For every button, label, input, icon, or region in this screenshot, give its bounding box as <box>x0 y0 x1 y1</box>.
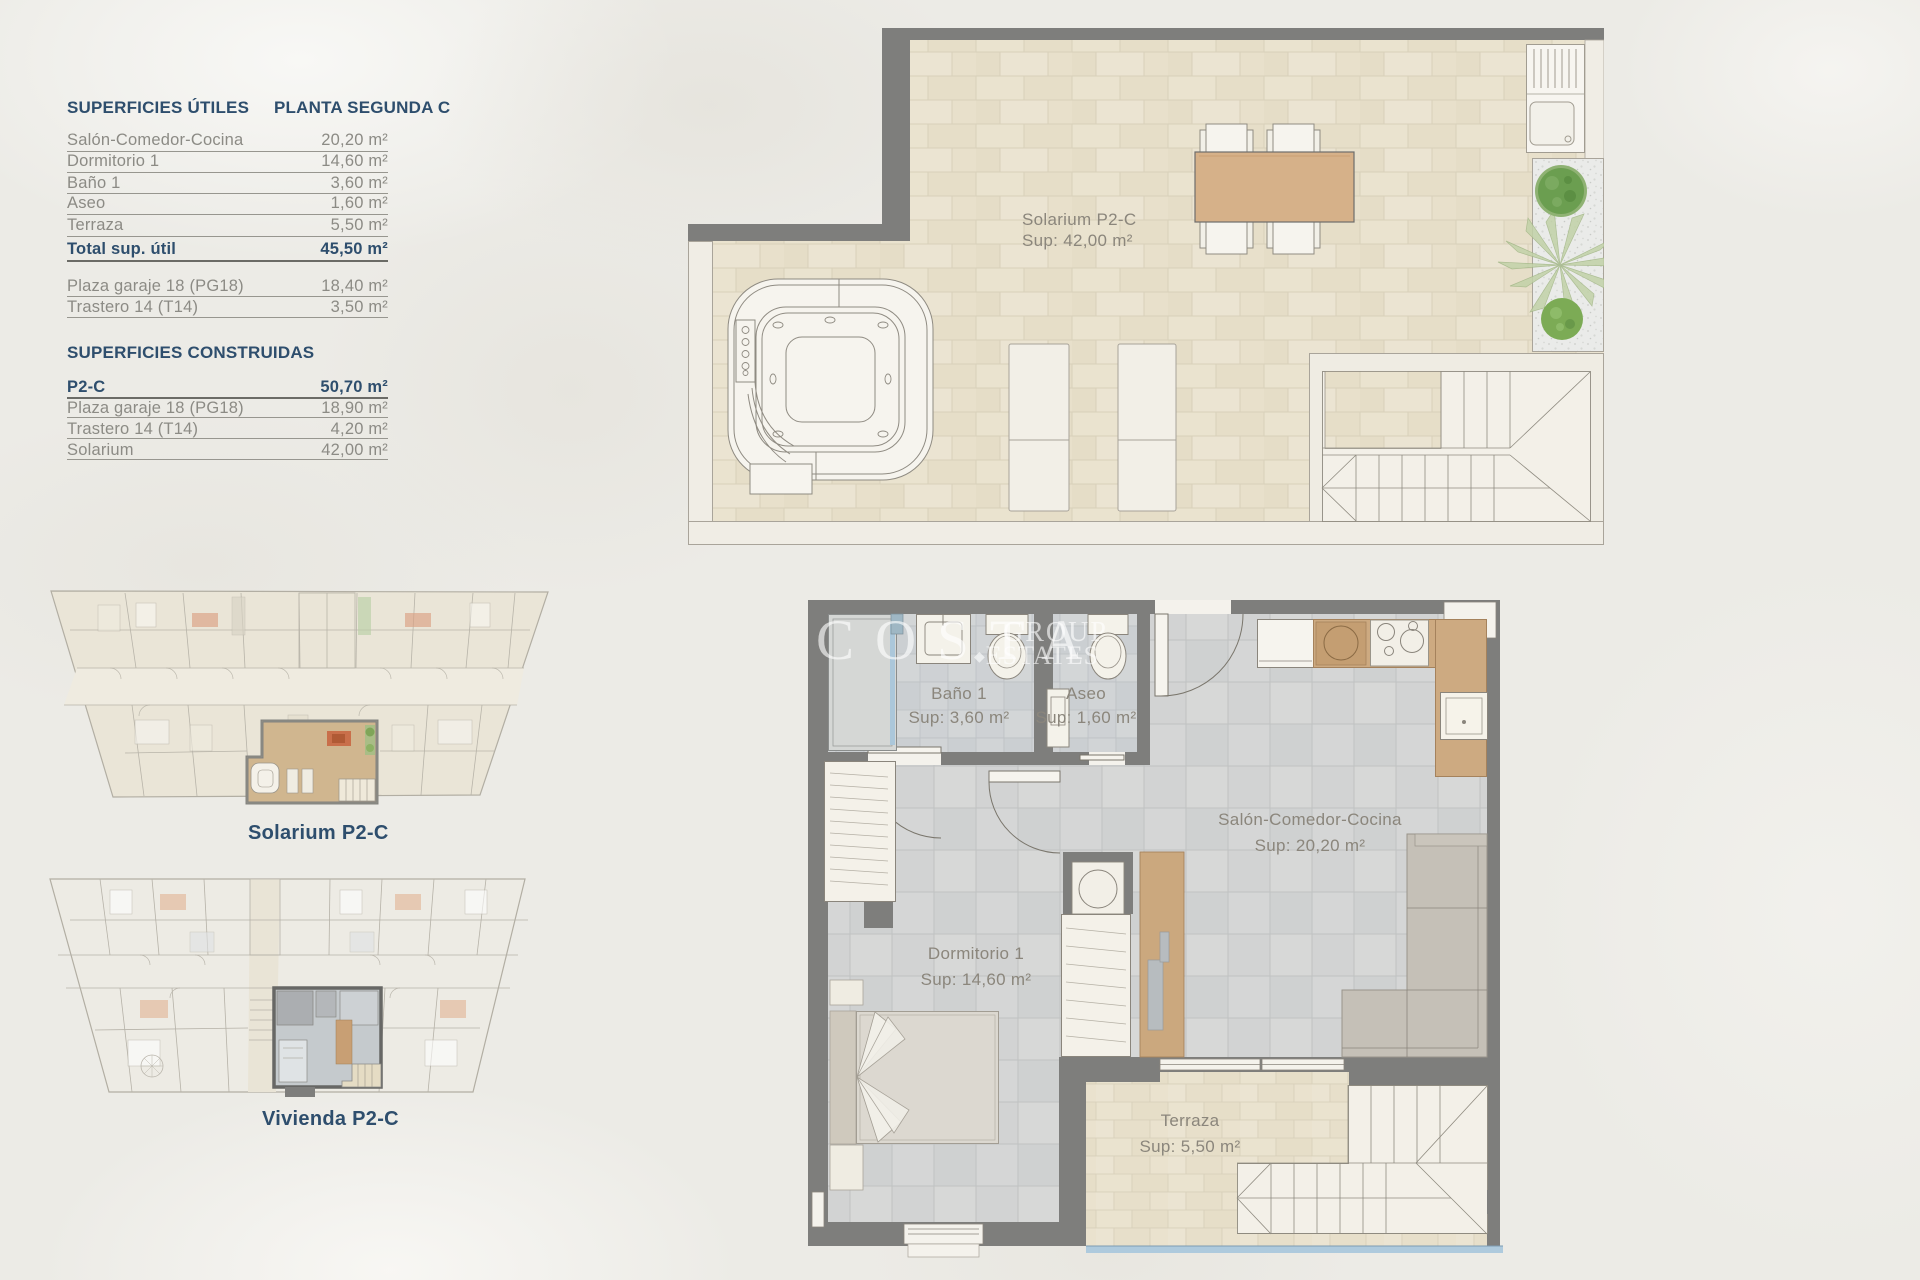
svg-text:Sup: 42,00 m²: Sup: 42,00 m² <box>1022 231 1133 250</box>
svg-text:Sup: 3,60 m²: Sup: 3,60 m² <box>909 708 1010 727</box>
svg-text:Sup: 14,60 m²: Sup: 14,60 m² <box>921 970 1032 989</box>
svg-text:Baño 1: Baño 1 <box>931 684 987 703</box>
svg-text:Solarium P2-C: Solarium P2-C <box>1022 210 1136 229</box>
svg-text:Terraza: Terraza <box>1161 1111 1220 1130</box>
svg-text:Sup: 5,50 m²: Sup: 5,50 m² <box>1140 1137 1241 1156</box>
svg-text:Aseo: Aseo <box>1066 684 1106 703</box>
svg-text:Sup: 20,20 m²: Sup: 20,20 m² <box>1255 836 1366 855</box>
svg-text:Sup: 1,60 m²: Sup: 1,60 m² <box>1036 708 1137 727</box>
svg-text:Salón-Comedor-Cocina: Salón-Comedor-Cocina <box>1218 810 1402 829</box>
svg-text:Dormitorio 1: Dormitorio 1 <box>928 944 1024 963</box>
